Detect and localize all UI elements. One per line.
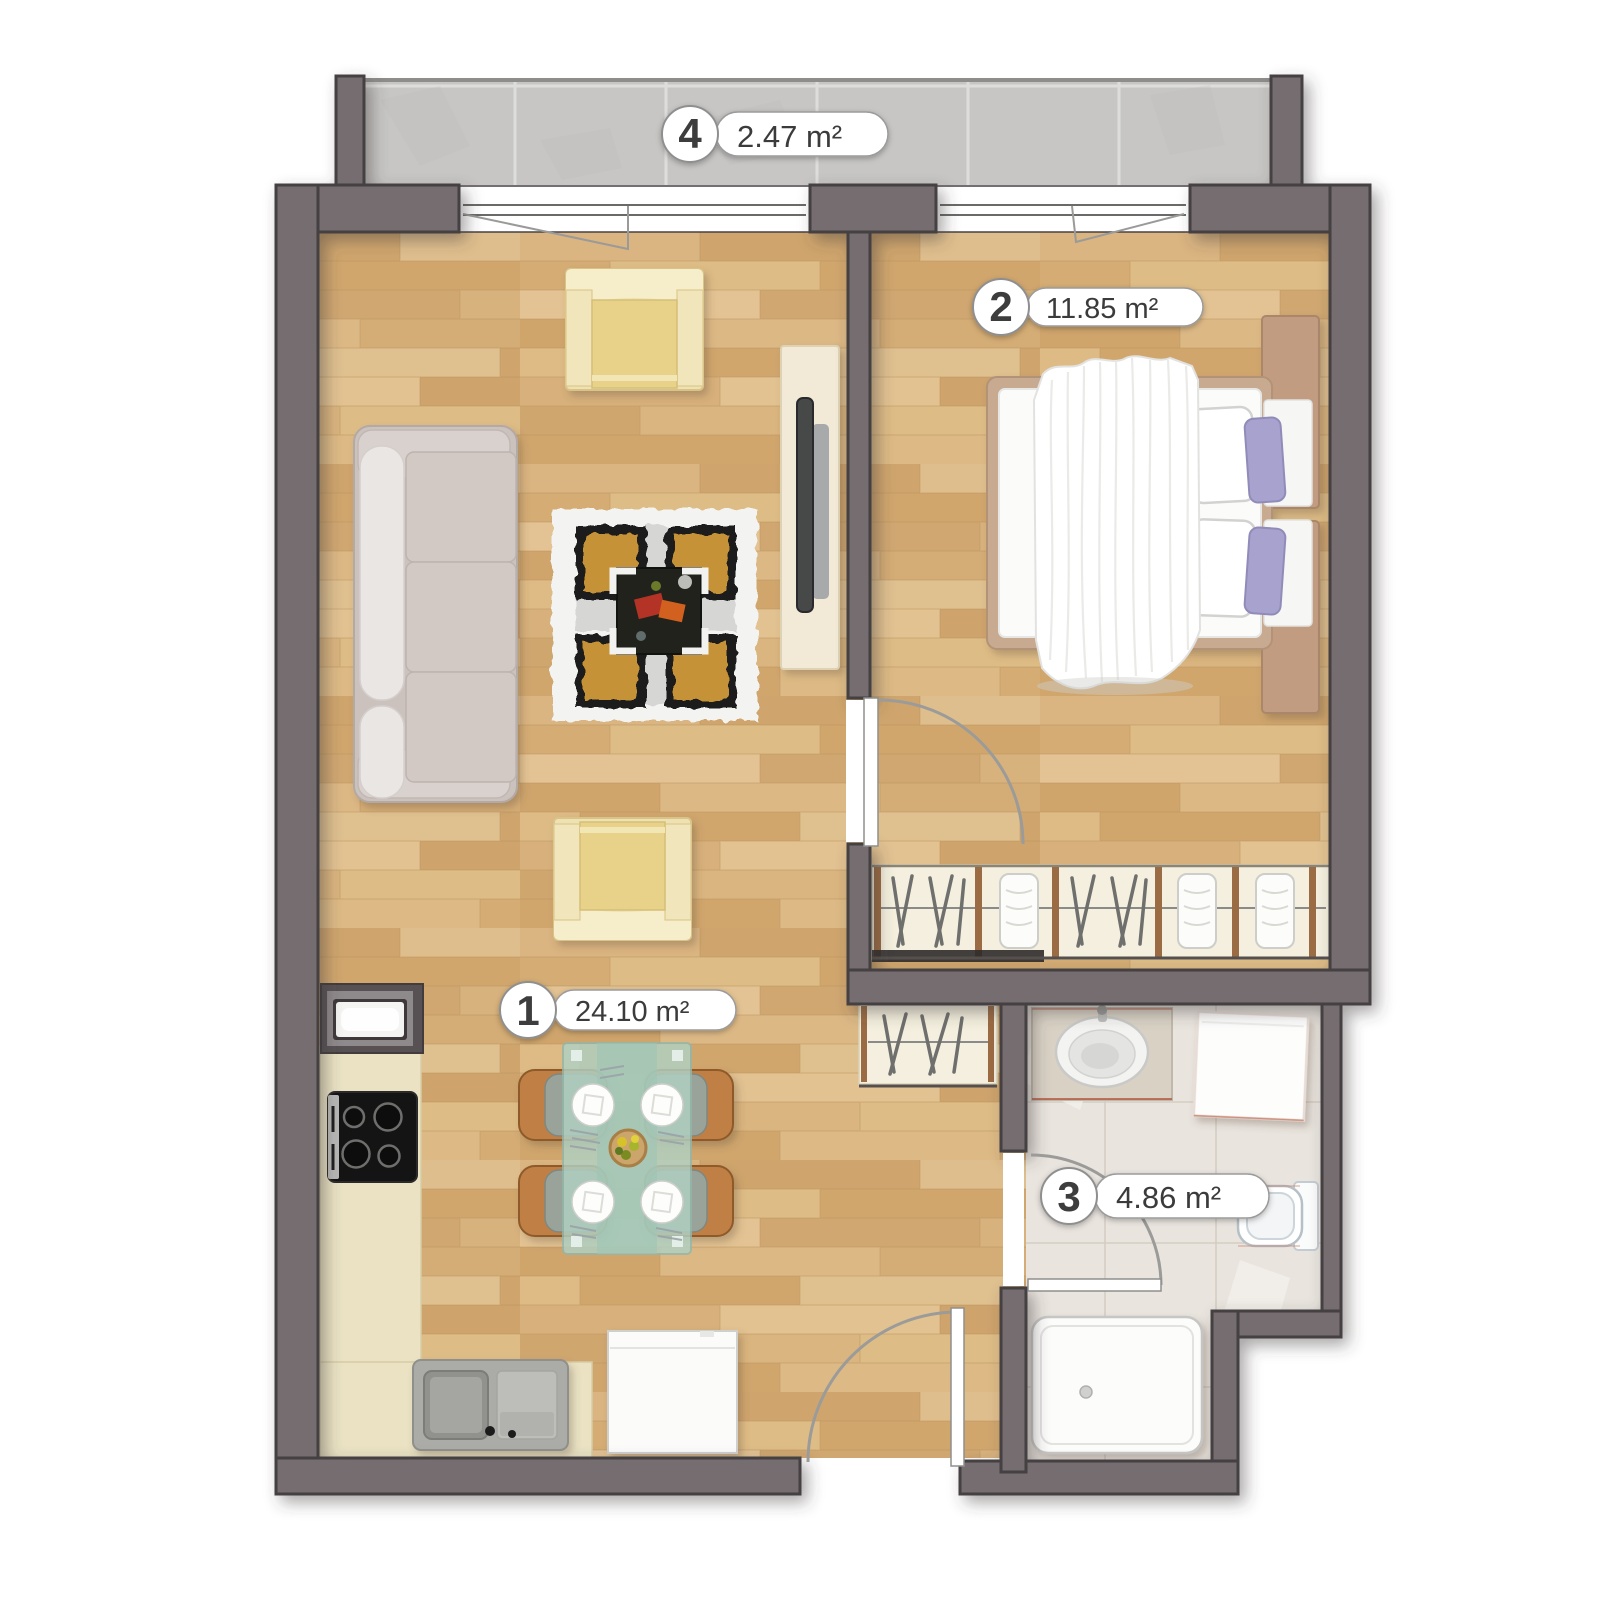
svg-text:2.47 m²: 2.47 m² — [737, 119, 842, 154]
svg-text:1: 1 — [516, 987, 539, 1034]
svg-text:3: 3 — [1057, 1173, 1080, 1220]
svg-text:24.10 m²: 24.10 m² — [575, 996, 690, 1028]
svg-text:2: 2 — [989, 283, 1012, 330]
svg-text:11.85 m²: 11.85 m² — [1046, 293, 1159, 325]
svg-text:4: 4 — [678, 110, 702, 157]
svg-text:4.86 m²: 4.86 m² — [1116, 1180, 1221, 1215]
